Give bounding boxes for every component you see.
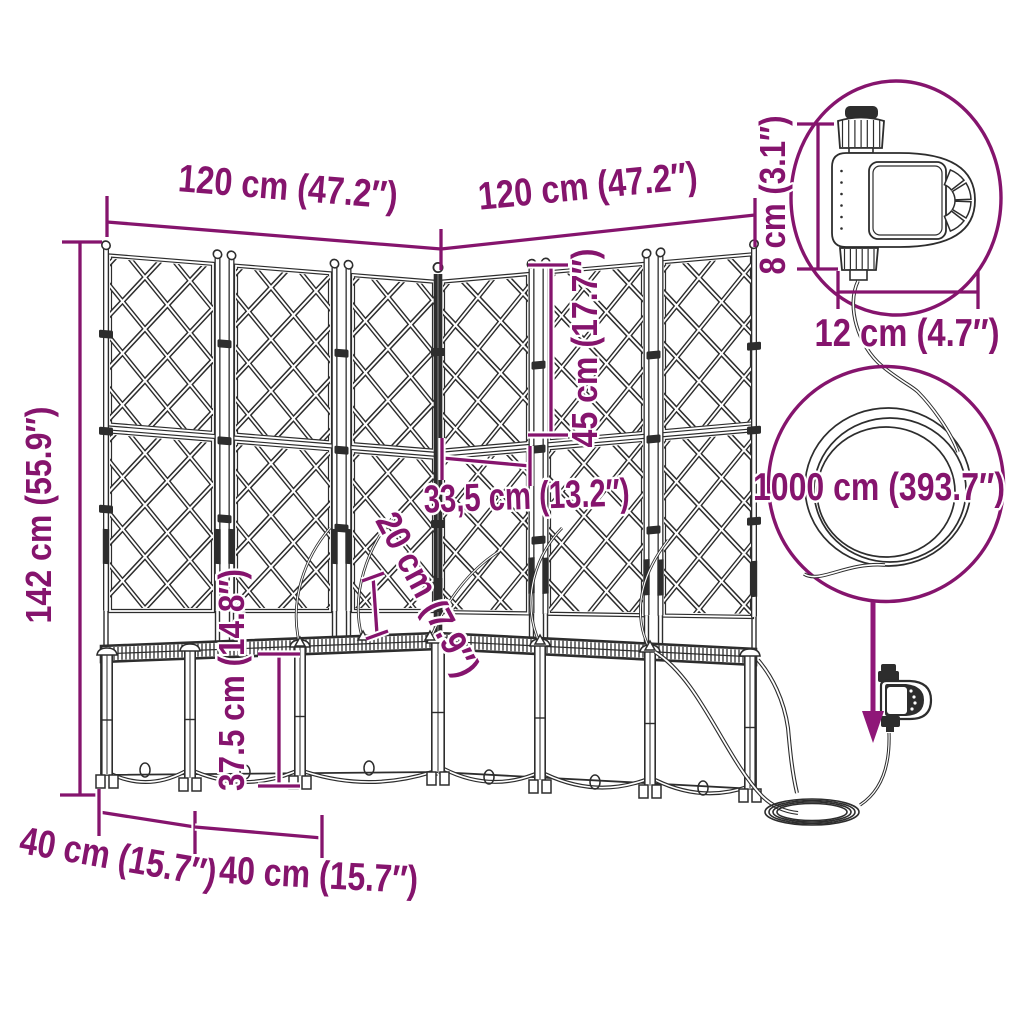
- svg-text:1000 cm (393.7″): 1000 cm (393.7″): [753, 466, 1005, 509]
- svg-text:12 cm (4.7″): 12 cm (4.7″): [815, 312, 1000, 355]
- svg-text:45 cm (17.7″): 45 cm (17.7″): [564, 249, 605, 448]
- svg-text:37.5 cm (14.8″): 37.5 cm (14.8″): [211, 569, 252, 791]
- svg-text:33,5 cm (13.2″): 33,5 cm (13.2″): [423, 471, 630, 521]
- svg-text:142 cm (55.9″): 142 cm (55.9″): [18, 407, 59, 624]
- svg-text:8 cm (3.1″): 8 cm (3.1″): [752, 116, 793, 275]
